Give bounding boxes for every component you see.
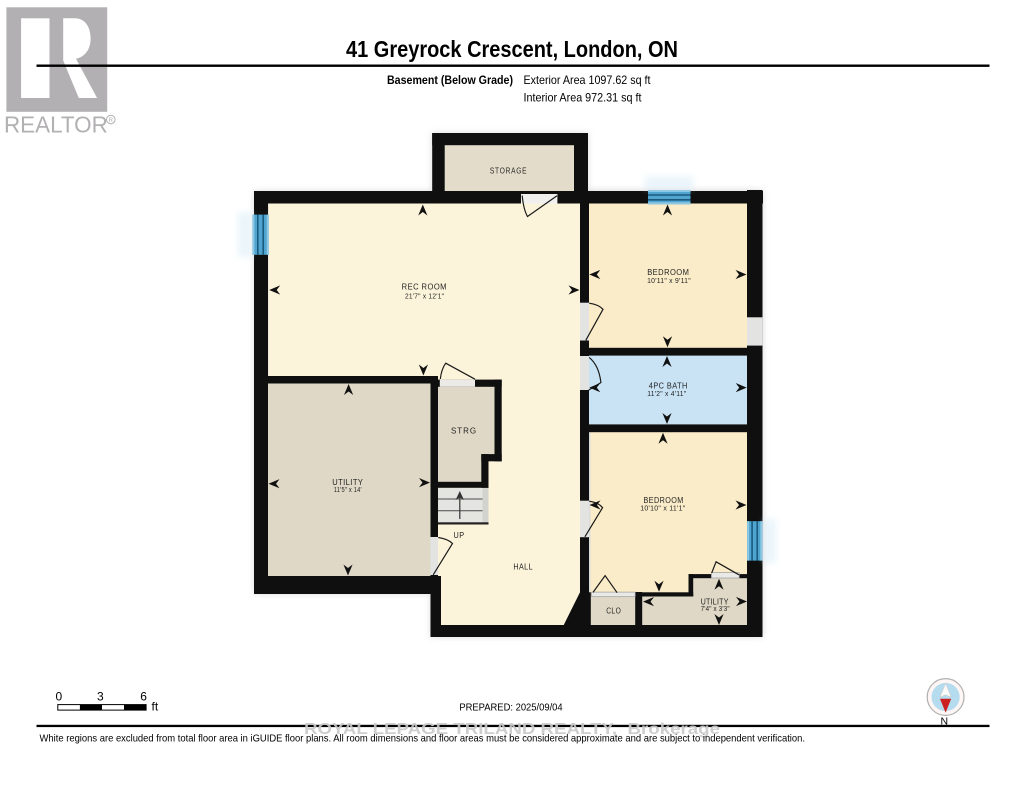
svg-text:HALL: HALL xyxy=(513,562,533,572)
svg-text:10'10" x 11'1": 10'10" x 11'1" xyxy=(640,504,685,513)
svg-text:3: 3 xyxy=(97,690,104,704)
svg-text:PREPARED: 2025/09/04: PREPARED: 2025/09/04 xyxy=(459,702,562,714)
svg-text:STORAGE: STORAGE xyxy=(490,166,528,176)
svg-text:ft: ft xyxy=(152,700,159,714)
svg-text:REALTOR: REALTOR xyxy=(4,112,108,138)
svg-text:Exterior Area 1097.62 sq ft: Exterior Area 1097.62 sq ft xyxy=(524,73,652,87)
svg-text:REC ROOM: REC ROOM xyxy=(402,282,447,292)
svg-text:21'7" x 12'1": 21'7" x 12'1" xyxy=(405,291,444,300)
svg-text:7'4" x 3'3": 7'4" x 3'3" xyxy=(701,604,730,613)
svg-text:11'5" x 14': 11'5" x 14' xyxy=(334,485,362,494)
svg-text:Interior Area 972.31 sq ft: Interior Area 972.31 sq ft xyxy=(524,91,643,105)
svg-text:UP: UP xyxy=(454,530,465,540)
svg-text:11'2" x 4'11": 11'2" x 4'11" xyxy=(647,389,686,398)
svg-text:41 Greyrock Crescent, London,: 41 Greyrock Crescent, London, ON xyxy=(346,36,678,62)
svg-text:10'11" x 9'11": 10'11" x 9'11" xyxy=(647,276,691,285)
svg-text:N: N xyxy=(941,716,949,728)
svg-text:R: R xyxy=(109,118,114,124)
svg-text:Basement (Below Grade): Basement (Below Grade) xyxy=(387,73,513,87)
svg-text:0: 0 xyxy=(56,690,63,704)
svg-text:6: 6 xyxy=(140,690,147,704)
svg-text:CLO: CLO xyxy=(606,606,621,616)
svg-text:White regions are excluded fro: White regions are excluded from total fl… xyxy=(40,734,806,745)
svg-text:STRG: STRG xyxy=(451,426,477,436)
